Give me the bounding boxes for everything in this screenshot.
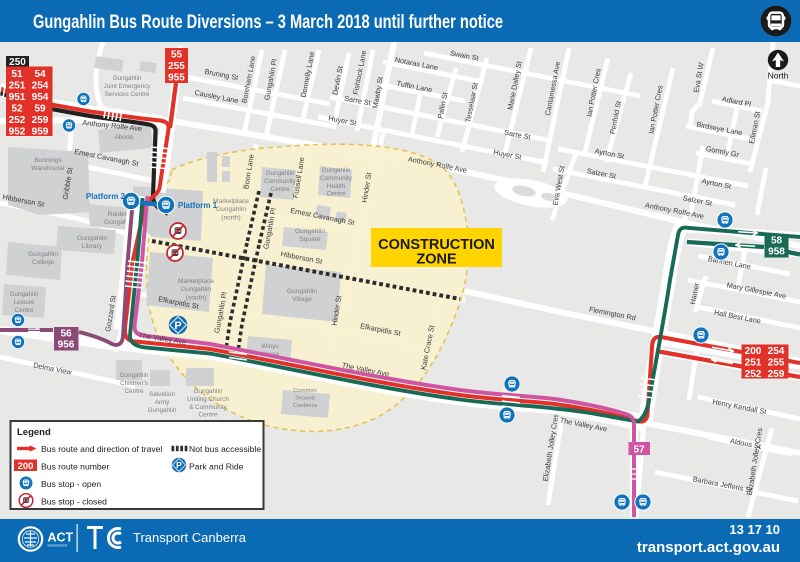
svg-text:255: 255 [168,61,185,72]
svg-text:Bus route and direction of tra: Bus route and direction of travel [41,444,162,454]
svg-text:59: 59 [34,104,46,115]
svg-text:Abode: Abode [114,134,133,141]
svg-text:Gungahlin Bus Route Diversions: Gungahlin Bus Route Diversions – 3 March… [33,12,503,33]
svg-text:57: 57 [633,445,645,456]
svg-text:955: 955 [168,73,185,84]
svg-text:Government: Government [48,544,68,548]
svg-text:13 17 10: 13 17 10 [729,522,780,537]
svg-text:958: 958 [768,247,785,258]
svg-text:51: 51 [11,69,23,80]
svg-text:Not bus accessible: Not bus accessible [189,444,261,454]
svg-text:956: 956 [58,340,75,351]
svg-text:55: 55 [171,50,183,61]
svg-text:259: 259 [768,369,785,380]
svg-text:GungahlinCollege: GungahlinCollege [28,251,58,266]
svg-text:250: 250 [9,57,26,68]
svg-text:transport.act.gov.au: transport.act.gov.au [637,539,780,556]
svg-text:52: 52 [11,104,23,115]
svg-text:CommonGroundCanberra: CommonGroundCanberra [293,388,318,409]
svg-text:252: 252 [9,115,26,126]
svg-text:251: 251 [745,358,762,369]
svg-text:ZONE: ZONE [416,252,457,268]
svg-text:Park and Ride: Park and Ride [189,462,244,472]
svg-text:Bus stop - closed: Bus stop - closed [41,497,107,507]
svg-text:200: 200 [18,461,34,472]
svg-text:Transport Canberra: Transport Canberra [133,530,247,545]
svg-text:951: 951 [9,92,26,103]
svg-text:54: 54 [34,69,46,80]
svg-text:954: 954 [32,92,49,103]
svg-text:252: 252 [745,369,762,380]
svg-text:259: 259 [32,115,49,126]
svg-text:255: 255 [768,358,785,369]
svg-text:254: 254 [768,346,785,357]
svg-text:959: 959 [32,127,49,138]
svg-text:North: North [768,71,789,81]
svg-text:Platform 2: Platform 2 [86,192,126,201]
svg-text:251: 251 [9,81,26,92]
svg-text:Bus stop - open: Bus stop - open [41,479,101,489]
svg-text:Platform 1: Platform 1 [178,201,218,210]
svg-text:BunningsWarehouse: BunningsWarehouse [31,157,65,172]
svg-text:Bus route number: Bus route number [41,462,109,472]
svg-text:ACT: ACT [48,531,74,545]
svg-text:254: 254 [32,81,49,92]
svg-text:56: 56 [60,329,72,340]
svg-text:Legend: Legend [17,427,51,438]
svg-text:952: 952 [9,127,26,138]
svg-text:58: 58 [771,236,783,247]
svg-text:200: 200 [745,346,762,357]
